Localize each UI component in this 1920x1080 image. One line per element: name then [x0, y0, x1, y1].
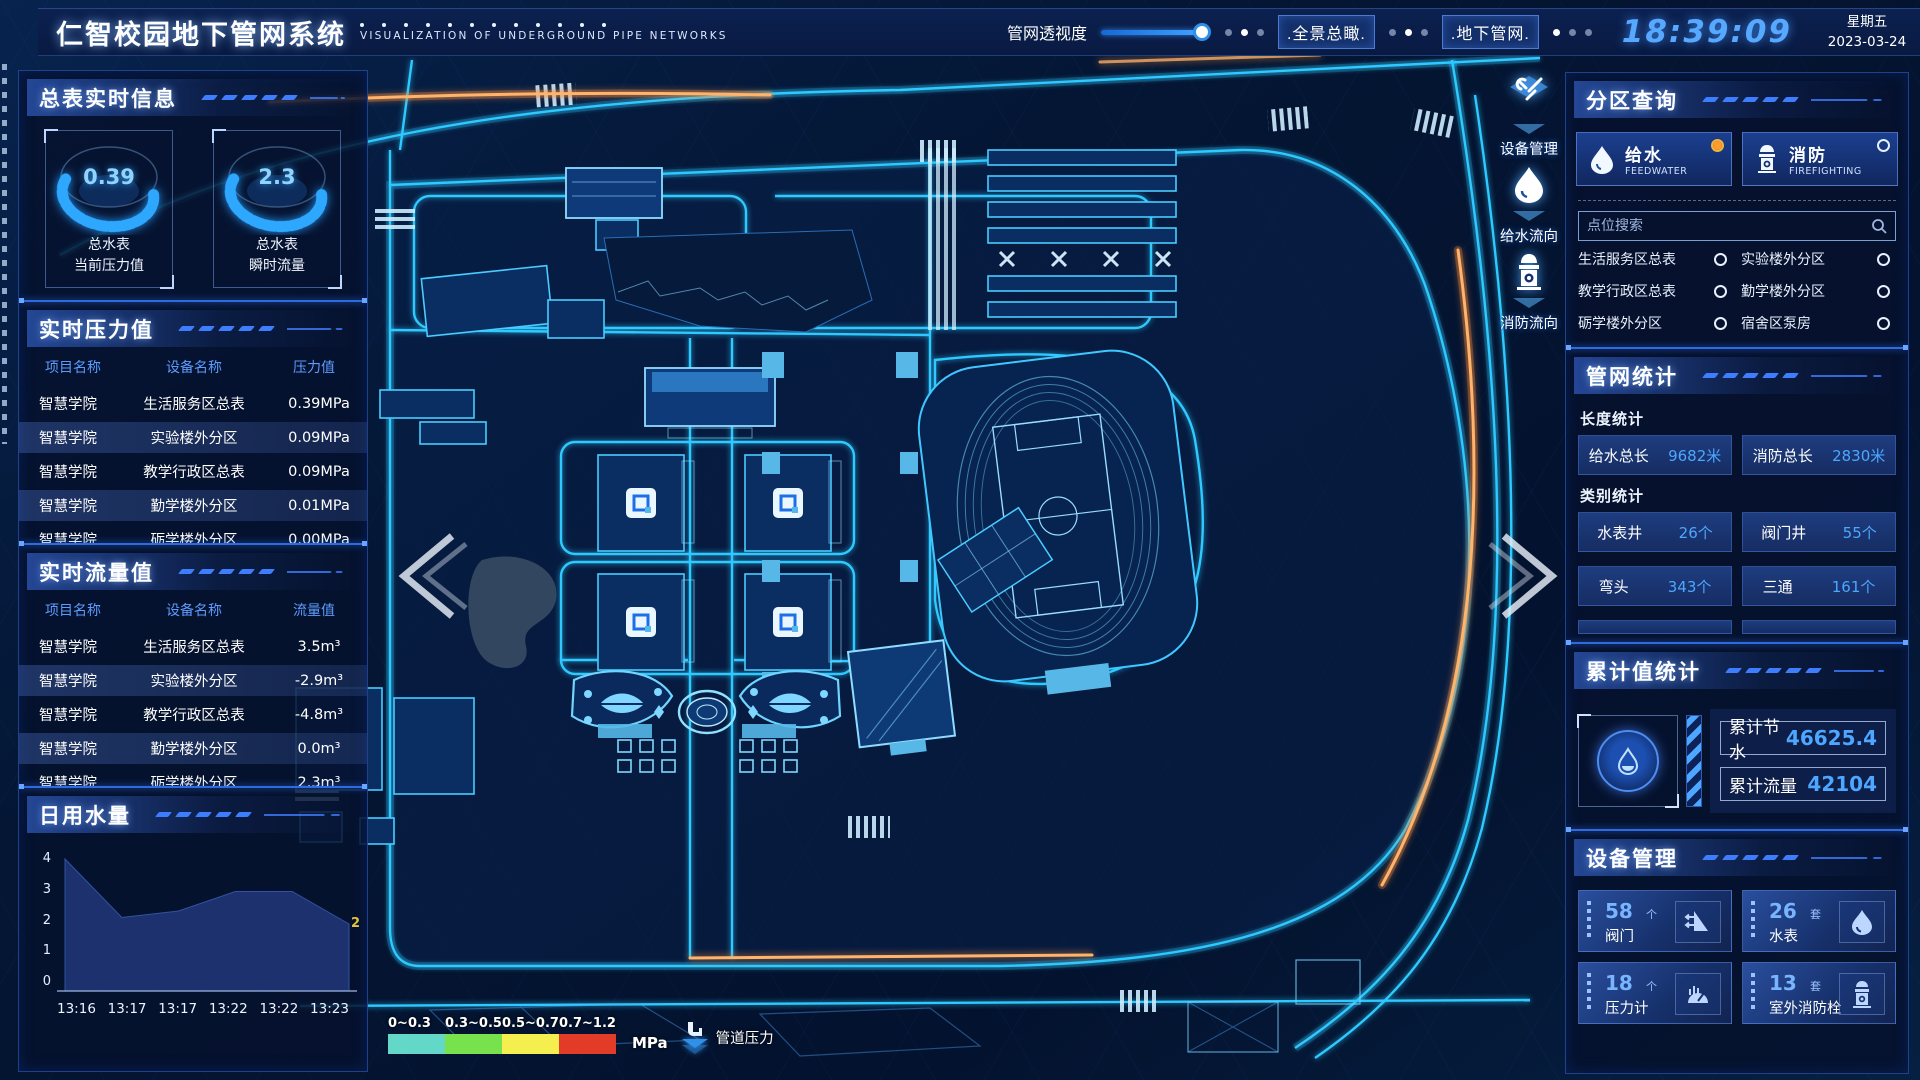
zone-item-label: 生活服务区总表 [1578, 249, 1676, 269]
gauge-label-line2: 当前压力值 [46, 256, 172, 277]
legend-range-label: 0.3~0.5 [445, 1016, 502, 1031]
cumulative-row: 累计流量 42104 [1720, 767, 1886, 801]
table-cell: 智慧学院 [19, 738, 117, 759]
divider [1568, 347, 1906, 349]
table-cell: 智慧学院 [19, 670, 117, 691]
overview-button[interactable]: .全景总瞰. [1278, 15, 1375, 49]
chevron-down-icon [1513, 298, 1545, 308]
radio-unselected[interactable] [1877, 253, 1890, 266]
legend-range-labels: 0~0.30.3~0.50.5~0.70.7~1.2 [388, 1016, 616, 1031]
table-cell: 3.5m³ [271, 639, 367, 655]
table-cell: 砺学楼外分区 [117, 772, 271, 786]
table-cell: 智慧学院 [19, 495, 117, 516]
app-title: 仁智校园地下管网系统 [56, 13, 346, 52]
tab-label: 消防 [1789, 141, 1862, 166]
device-count: 58 [1605, 899, 1633, 923]
table-cell: 0.01MPa [271, 498, 367, 514]
gauge-label-line2: 瞬时流量 [214, 256, 340, 277]
device-count: 18 [1605, 971, 1633, 995]
tab-sublabel: FEEDWATER [1625, 166, 1687, 177]
header-line-decoration [1811, 375, 1890, 377]
dots-separator [1389, 29, 1428, 36]
stat-value: 161个 [1832, 576, 1876, 597]
table-cell: 2.3m³ [271, 775, 367, 787]
zone-list-item[interactable]: 实验楼外分区 [1741, 249, 1896, 269]
stat-name: 弯头 [1599, 576, 1629, 597]
pipe-pressure-icon [682, 1020, 708, 1054]
slider-track[interactable] [1101, 30, 1197, 35]
table-row: 智慧学院实验楼外分区0.09MPa [19, 422, 367, 453]
zone-list-item[interactable]: 勤学楼外分区 [1741, 281, 1896, 301]
table-cell: 智慧学院 [19, 772, 117, 786]
pressure-table: 智慧学院生活服务区总表0.39MPa智慧学院实验楼外分区0.09MPa智慧学院教… [19, 385, 367, 543]
table-row: 智慧学院砺学楼外分区2.3m³ [19, 767, 367, 786]
legend-range-label: 0.7~1.2 [559, 1016, 616, 1031]
area-chart [57, 851, 357, 993]
subtitle: VISUALIZATION OF UNDERGROUND PIPE NETWOR… [360, 30, 728, 42]
table-cell: 0.09MPa [271, 464, 367, 480]
cumulative-header: 累计值统计 [1574, 652, 1900, 689]
x-tick-label: 13:16 [57, 1001, 96, 1017]
section-title: 设备管理 [1586, 843, 1678, 873]
gauges-row: 0.39 总水表 当前压力值 2.3 总水表 瞬时流量 [19, 120, 367, 300]
divider [21, 786, 365, 788]
x-tick-label: 13:22 [259, 1001, 298, 1017]
device-unit: 套 [1810, 908, 1821, 921]
search-icon[interactable] [1871, 218, 1887, 234]
stat-box: 消防总长2830米 [1742, 435, 1896, 475]
clock: 18:39:09 [1622, 14, 1792, 50]
pressure-header: 实时压力值 [27, 310, 359, 347]
stat-box: 弯头343个 [1578, 566, 1732, 606]
category-stats-label: 类别统计 [1580, 485, 1894, 506]
header-line-decoration [310, 97, 349, 99]
table-cell: -4.8m³ [271, 707, 367, 723]
table-cell: 智慧学院 [19, 427, 117, 448]
water-drop-icon [1512, 165, 1546, 209]
stat-box: 阀门井55个 [1742, 512, 1896, 552]
tab-label: 给水 [1625, 141, 1687, 166]
section-title: 累计值统计 [1586, 656, 1701, 686]
table-cell: 生活服务区总表 [117, 636, 271, 657]
zone-item-label: 勤学楼外分区 [1741, 281, 1825, 301]
stat-value: 42104 [1807, 772, 1877, 796]
weekday: 星期五 [1824, 12, 1910, 32]
dots-decoration [360, 23, 728, 27]
outdoor-hydrant-card[interactable]: 13 套 室外消防栓 [1742, 962, 1896, 1024]
table-row: 智慧学院生活服务区总表3.5m³ [19, 631, 367, 662]
firefighting-tab[interactable]: 消防 FIREFIGHTING [1742, 132, 1898, 186]
header-line-decoration [287, 328, 349, 330]
y-tick-label: 2 [31, 913, 51, 928]
hydrant-icon [1839, 973, 1885, 1015]
table-cell: 教学行政区总表 [117, 461, 271, 482]
slashes-decoration [180, 326, 273, 331]
slashes-decoration [1704, 373, 1797, 378]
x-axis-ticks: 13:1613:1713:1713:2213:2213:23 [57, 1001, 349, 1017]
cumulative-stats: 累计节水 46625.4 累计流量 42104 [1566, 693, 1908, 813]
slashes-decoration [1704, 855, 1797, 860]
table-row: 智慧学院勤学楼外分区0.01MPa [19, 490, 367, 521]
radio-unselected[interactable] [1714, 285, 1727, 298]
device-unit: 套 [1810, 980, 1821, 993]
table-cell: 实验楼外分区 [117, 670, 271, 691]
section-title: 总表实时信息 [39, 83, 177, 113]
device-manage-tool[interactable]: 设备管理 [1500, 72, 1558, 159]
section-title: 管网统计 [1586, 361, 1678, 391]
column-header: 项目名称 [29, 357, 117, 377]
underground-button[interactable]: .地下管网. [1442, 15, 1539, 49]
feedwater-tab[interactable]: 给水 FEEDWATER [1576, 132, 1732, 186]
zone-item-label: 宿舍区泵房 [1741, 313, 1811, 333]
length-stats: 给水总长9682米消防总长2830米 [1566, 435, 1908, 475]
y-tick-label: 0 [31, 974, 51, 989]
table-cell: 0.39MPa [271, 396, 367, 412]
pan-right-arrow[interactable] [1482, 528, 1574, 624]
zone-list-item[interactable]: 教学行政区总表 [1578, 281, 1733, 301]
stat-value: 26个 [1679, 522, 1713, 543]
table-cell: 0.09MPa [271, 430, 367, 446]
daily-usage-header: 日用水量 [27, 796, 359, 833]
stat-value: 46625.4 [1786, 726, 1877, 750]
fire-flow-tool[interactable]: 消防流向 [1500, 252, 1558, 333]
zone-item-label: 实验楼外分区 [1741, 249, 1825, 269]
legend-range-label: 0~0.3 [388, 1016, 445, 1031]
y-tick-label: 3 [31, 882, 51, 897]
column-header: 项目名称 [29, 600, 117, 620]
header-bar: 仁智校园地下管网系统 VISUALIZATION OF UNDERGROUND … [38, 8, 1920, 56]
legend-unit: MPa [632, 1034, 668, 1052]
stat-name: 三通 [1763, 576, 1793, 597]
dashed-divider [1578, 200, 1896, 201]
zone-item-label: 砺学楼外分区 [1578, 313, 1662, 333]
column-header: 压力值 [271, 357, 357, 377]
water-drop-icon [1589, 144, 1615, 174]
pressure-gauge-icon [1675, 973, 1721, 1015]
chevron-down-icon [1513, 124, 1545, 134]
dots-separator [1553, 29, 1592, 36]
daily-usage-chart: 01234 2 [19, 837, 367, 997]
radio-unselected[interactable] [1877, 317, 1890, 330]
tool-label: 消防流向 [1500, 312, 1558, 333]
pressure-table-header: 项目名称 设备名称 压力值 [19, 351, 367, 385]
category-stats: 水表井26个阀门井55个弯头343个三通161个 [1566, 512, 1908, 606]
pressure-gauge-card[interactable]: 18 个 压力计 [1578, 962, 1732, 1024]
flow-table: 智慧学院生活服务区总表3.5m³智慧学院实验楼外分区-2.9m³智慧学院教学行政… [19, 628, 367, 786]
header-line-decoration [1811, 99, 1890, 101]
table-row: 智慧学院实验楼外分区-2.9m³ [19, 665, 367, 696]
right-panel: 分区查询 给水 FEEDWATER 消防 FIREFIGHTING [1565, 72, 1909, 1074]
table-row: 智慧学院教学行政区总表-4.8m³ [19, 699, 367, 730]
device-mgmt-header: 设备管理 [1574, 839, 1900, 876]
x-tick-label: 13:17 [158, 1001, 197, 1017]
edge-ticks-decoration [2, 64, 7, 444]
header-line-decoration [1811, 857, 1890, 859]
flow-table-header: 项目名称 设备名称 流量值 [19, 594, 367, 628]
legend-label: 管道压力 [716, 1027, 774, 1048]
x-tick-label: 13:22 [209, 1001, 248, 1017]
slashes-decoration [180, 569, 273, 574]
legend-swatch [388, 1034, 445, 1054]
category-stats-clipped [1566, 620, 1908, 634]
table-cell: 智慧学院 [19, 393, 117, 414]
table-cell: 教学行政区总表 [117, 704, 271, 725]
tools-icon [1506, 72, 1552, 122]
device-count: 26 [1769, 899, 1797, 923]
hydrant-icon [1755, 144, 1779, 174]
section-title: 实时压力值 [39, 314, 154, 344]
divider [21, 300, 365, 302]
y-tick-label: 1 [31, 943, 51, 958]
device-cards: 58 个 阀门 26 套 水表 18 个 压力计 13 套 室外消防栓 [1566, 880, 1908, 1034]
zone-item-label: 教学行政区总表 [1578, 281, 1676, 301]
y-axis-ticks: 01234 [31, 851, 57, 989]
gauge-label-line1: 总水表 [46, 235, 172, 256]
device-count: 13 [1769, 971, 1797, 995]
water-drop-icon [1597, 730, 1659, 792]
stat-value: 343个 [1668, 576, 1712, 597]
dots-separator [1225, 29, 1264, 36]
radio-selected[interactable] [1711, 139, 1724, 152]
section-title: 日用水量 [39, 800, 131, 830]
slashes-decoration [157, 812, 250, 817]
zone-list-item[interactable]: 宿舍区泵房 [1741, 313, 1896, 333]
stat-name: 累计流量 [1729, 772, 1797, 797]
valve-icon [1675, 901, 1721, 943]
search-input[interactable] [1587, 218, 1871, 234]
water-meter-card[interactable]: 26 套 水表 [1742, 890, 1896, 952]
legend-range-label: 0.5~0.7 [502, 1016, 559, 1031]
stat-name: 阀门井 [1761, 522, 1806, 543]
table-cell: 0.0m³ [271, 741, 367, 757]
hydrant-icon [1513, 252, 1545, 296]
meter-info-header: 总表实时信息 [27, 79, 359, 116]
map-tools-column: 设备管理 给水流向 消防流向 [1496, 72, 1562, 333]
header-line-decoration [1834, 670, 1890, 672]
table-row: 智慧学院砺学楼外分区0.00MPa [19, 524, 367, 543]
slashes-decoration [1704, 97, 1797, 102]
water-meter-icon [1839, 901, 1885, 943]
stat-name: 累计节水 [1729, 713, 1786, 763]
table-cell: -2.9m³ [271, 673, 367, 689]
cumulative-icon-box [1578, 715, 1678, 807]
divider [21, 543, 365, 545]
x-tick-label: 13:23 [310, 1001, 349, 1017]
stat-name: 水表井 [1597, 522, 1642, 543]
divider [1568, 642, 1906, 644]
table-row: 智慧学院教学行政区总表0.09MPa [19, 456, 367, 487]
gauge-pressure: 0.39 总水表 当前压力值 [45, 130, 173, 288]
valve-card[interactable]: 58 个 阀门 [1578, 890, 1732, 952]
table-row: 智慧学院勤学楼外分区0.0m³ [19, 733, 367, 764]
stripe-decoration [1686, 715, 1702, 807]
left-panel: 总表实时信息 0.39 总水表 当前压力值 2.3 总水表 [18, 70, 368, 1072]
stat-box-clipped [1742, 620, 1896, 634]
chevron-down-icon [1513, 211, 1545, 221]
radio-unselected[interactable] [1877, 285, 1890, 298]
column-header: 流量值 [271, 600, 357, 620]
radio-unselected[interactable] [1714, 317, 1727, 330]
zone-list-item[interactable]: 生活服务区总表 [1578, 249, 1733, 269]
slider-thumb[interactable] [1193, 23, 1211, 41]
table-cell: 智慧学院 [19, 636, 117, 657]
x-tick-label: 13:17 [108, 1001, 147, 1017]
tab-sublabel: FIREFIGHTING [1789, 166, 1862, 177]
legend-swatch [445, 1034, 502, 1054]
search-box[interactable] [1578, 211, 1896, 241]
stat-box: 给水总长9682米 [1578, 435, 1732, 475]
radio-unselected[interactable] [1877, 139, 1890, 152]
table-cell: 勤学楼外分区 [117, 495, 271, 516]
legend-swatch [559, 1034, 616, 1054]
tool-label: 设备管理 [1500, 138, 1558, 159]
chart-end-value: 2 [351, 916, 360, 931]
stat-value: 9682米 [1668, 445, 1721, 466]
table-cell: 生活服务区总表 [117, 393, 271, 414]
feedwater-flow-tool[interactable]: 给水流向 [1500, 165, 1558, 246]
table-row: 智慧学院生活服务区总表0.39MPa [19, 388, 367, 419]
zone-list: 生活服务区总表实验楼外分区教学行政区总表勤学楼外分区砺学楼外分区宿舍区泵房 [1566, 245, 1908, 337]
pipe-opacity-slider[interactable] [1101, 24, 1211, 40]
gauge-label-line1: 总水表 [214, 235, 340, 256]
pipe-opacity-label: 管网透视度 [1007, 20, 1087, 44]
device-unit: 个 [1646, 908, 1657, 921]
stat-box: 三通161个 [1742, 566, 1896, 606]
gauge-flow: 2.3 总水表 瞬时流量 [213, 130, 341, 288]
table-cell: 实验楼外分区 [117, 427, 271, 448]
slashes-decoration [203, 95, 296, 100]
pipe-stats-header: 管网统计 [1574, 357, 1900, 394]
column-header: 设备名称 [117, 357, 271, 377]
legend-swatch [502, 1034, 559, 1054]
section-title: 分区查询 [1586, 85, 1678, 115]
pan-left-arrow[interactable] [382, 528, 474, 624]
table-cell: 智慧学院 [19, 704, 117, 725]
y-tick-label: 4 [31, 851, 51, 866]
stat-box-clipped [1578, 620, 1732, 634]
zone-query-header: 分区查询 [1574, 81, 1900, 118]
slashes-decoration [1727, 668, 1820, 673]
gauge-value: 0.39 [46, 165, 172, 189]
legend-swatches [388, 1034, 616, 1054]
section-title: 实时流量值 [39, 557, 154, 587]
table-cell: 0.00MPa [271, 532, 367, 544]
gauge-value: 2.3 [214, 165, 340, 189]
date: 2023-03-24 [1824, 32, 1910, 52]
pressure-legend: 0~0.30.3~0.50.5~0.70.7~1.2 MPa 管道压力 [388, 1016, 774, 1054]
stat-name: 消防总长 [1753, 445, 1813, 466]
radio-unselected[interactable] [1714, 253, 1727, 266]
stat-value: 55个 [1843, 522, 1877, 543]
table-cell: 智慧学院 [19, 461, 117, 482]
header-line-decoration [264, 814, 349, 816]
stat-name: 给水总长 [1589, 445, 1649, 466]
zone-list-item[interactable]: 砺学楼外分区 [1578, 313, 1733, 333]
divider [1568, 829, 1906, 831]
tool-label: 给水流向 [1500, 225, 1558, 246]
column-header: 设备名称 [117, 600, 271, 620]
table-cell: 勤学楼外分区 [117, 738, 271, 759]
cumulative-row: 累计节水 46625.4 [1720, 721, 1886, 755]
table-cell: 智慧学院 [19, 529, 117, 543]
device-unit: 个 [1646, 980, 1657, 993]
flow-header: 实时流量值 [27, 553, 359, 590]
header-line-decoration [287, 571, 349, 573]
table-cell: 砺学楼外分区 [117, 529, 271, 543]
length-stats-label: 长度统计 [1580, 408, 1894, 429]
stat-value: 2830米 [1832, 445, 1885, 466]
stat-box: 水表井26个 [1578, 512, 1732, 552]
